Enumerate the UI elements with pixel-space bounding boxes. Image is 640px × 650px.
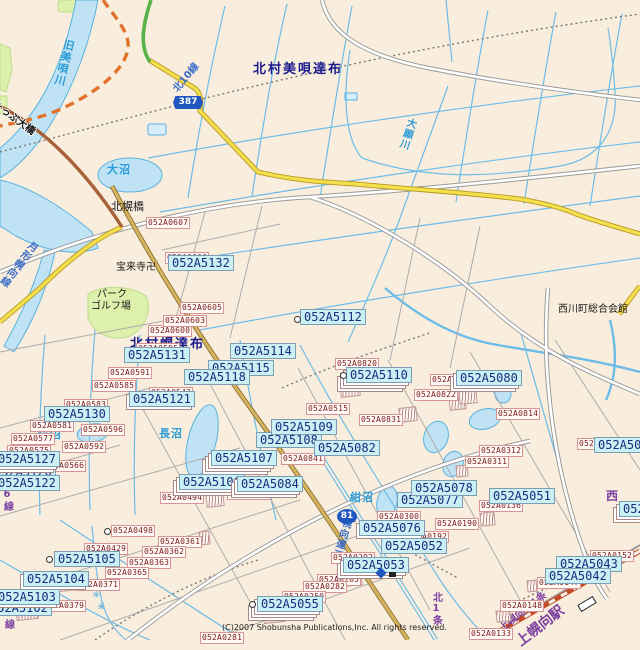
point-marker xyxy=(46,556,53,563)
area-code-label[interactable]: 052A0577 xyxy=(11,433,55,445)
map-code-label[interactable]: 052A5104 xyxy=(23,571,89,587)
point-marker xyxy=(249,601,256,608)
map-code-label[interactable]: 052A50 xyxy=(594,437,640,453)
label-stack xyxy=(526,580,537,593)
place-label: 北村美唄達布 xyxy=(253,63,343,77)
route-shield-81: 81 xyxy=(337,509,357,524)
point-marker xyxy=(340,372,347,379)
map-code-label[interactable]: 052A5042 xyxy=(545,568,611,584)
map-code-label[interactable]: 052A5052 xyxy=(381,538,447,554)
map-code-label[interactable]: 052A5106 xyxy=(179,474,245,490)
map-code-label[interactable]: 052A5132 xyxy=(168,255,234,271)
map-code-label[interactable]: 052A5118 xyxy=(184,369,250,385)
area-code-label[interactable]: 052A0596 xyxy=(81,424,125,436)
area-code-label[interactable]: 052A0133 xyxy=(469,628,513,640)
map-code-label[interactable]: 052A5121 xyxy=(129,391,195,407)
area-code-label[interactable]: 052A0603 xyxy=(163,315,207,327)
map-code-label[interactable]: 052A5078 xyxy=(411,480,477,496)
place-label: 紺沼 xyxy=(350,492,374,504)
route-shield-387: 387 xyxy=(173,96,203,109)
map-code-label[interactable]: 052A5084 xyxy=(237,476,303,492)
area-code-label[interactable]: 052A0515 xyxy=(306,403,350,415)
map-viewport: { "colors":{"bg":"#F9EEDD","water_fill":… xyxy=(0,0,640,640)
map-code-label[interactable]: 052A5112 xyxy=(300,309,366,325)
area-code-label[interactable]: 052A0822 xyxy=(414,389,458,401)
map-code-label[interactable]: 052A xyxy=(619,501,640,517)
place-label: 西 xyxy=(606,490,618,503)
area-code-label[interactable]: 052A0605 xyxy=(180,302,224,314)
label-stack xyxy=(479,511,495,526)
area-code-label[interactable]: 052A0311 xyxy=(465,456,509,468)
map-code-label[interactable]: 052A5107 xyxy=(211,450,277,466)
area-code-label[interactable]: 052A0591 xyxy=(108,367,152,379)
map-code-label[interactable]: 052A5130 xyxy=(44,406,110,422)
marsh-symbol: ✳ xyxy=(97,602,105,613)
map-code-label[interactable]: 052A5051 xyxy=(489,488,555,504)
map-code-label[interactable]: 052A5082 xyxy=(314,440,380,456)
point-marker xyxy=(104,528,111,535)
area-code-label[interactable]: 052A0831 xyxy=(359,414,403,426)
area-code-label[interactable]: 052A0365 xyxy=(105,567,149,579)
map-code-label[interactable]: 052A5114 xyxy=(230,343,296,359)
map-code-label[interactable]: 052A5055 xyxy=(257,596,323,612)
place-label: 西川町総合会館 xyxy=(558,305,628,316)
crossing-marker xyxy=(389,572,396,577)
place-label: 北幌橋 xyxy=(111,201,144,213)
area-code-label[interactable]: 052A0148 xyxy=(500,600,544,612)
map-code-label[interactable]: 052A5080 xyxy=(456,370,522,386)
place-label: 長沼 xyxy=(159,428,183,440)
area-code-label[interactable]: 052A0607 xyxy=(146,217,190,229)
area-code-label[interactable]: 052A0494 xyxy=(160,492,204,504)
marsh-symbol: ✳ xyxy=(92,590,100,601)
map-code-label[interactable]: 052A5110 xyxy=(346,367,412,383)
place-label: 北1条 xyxy=(430,592,441,626)
label-stack xyxy=(205,491,224,508)
area-code-label[interactable]: 052A0814 xyxy=(496,408,540,420)
map-code-label[interactable]: 052A5076 xyxy=(359,520,425,536)
map-code-label[interactable]: 052A5127 xyxy=(0,451,60,467)
area-code-label[interactable]: 052A0190 xyxy=(435,518,479,530)
map-code-label[interactable]: 052A5122 xyxy=(0,475,60,491)
label-stack xyxy=(458,388,477,405)
place-label: ゴルフ場 xyxy=(91,302,131,313)
place-label: 宝来寺卍 xyxy=(116,263,156,274)
area-code-label[interactable]: 052A0281 xyxy=(200,632,244,644)
point-marker xyxy=(294,316,301,323)
map-code-label[interactable]: 052A5109 xyxy=(271,419,337,435)
map-code-label[interactable]: 052A5105 xyxy=(54,551,120,567)
area-code-label[interactable]: 052A0498 xyxy=(111,525,155,537)
place-label: 大沼 xyxy=(107,164,131,176)
copyright-text: (C)2007 Shobunsha Publications,Inc. All … xyxy=(222,623,447,632)
place-label: パーク xyxy=(97,290,127,301)
map-code-label[interactable]: 052A5103 xyxy=(0,589,60,605)
map-code-label[interactable]: 052A5131 xyxy=(124,347,190,363)
area-code-label[interactable]: 052A0592 xyxy=(62,441,106,453)
